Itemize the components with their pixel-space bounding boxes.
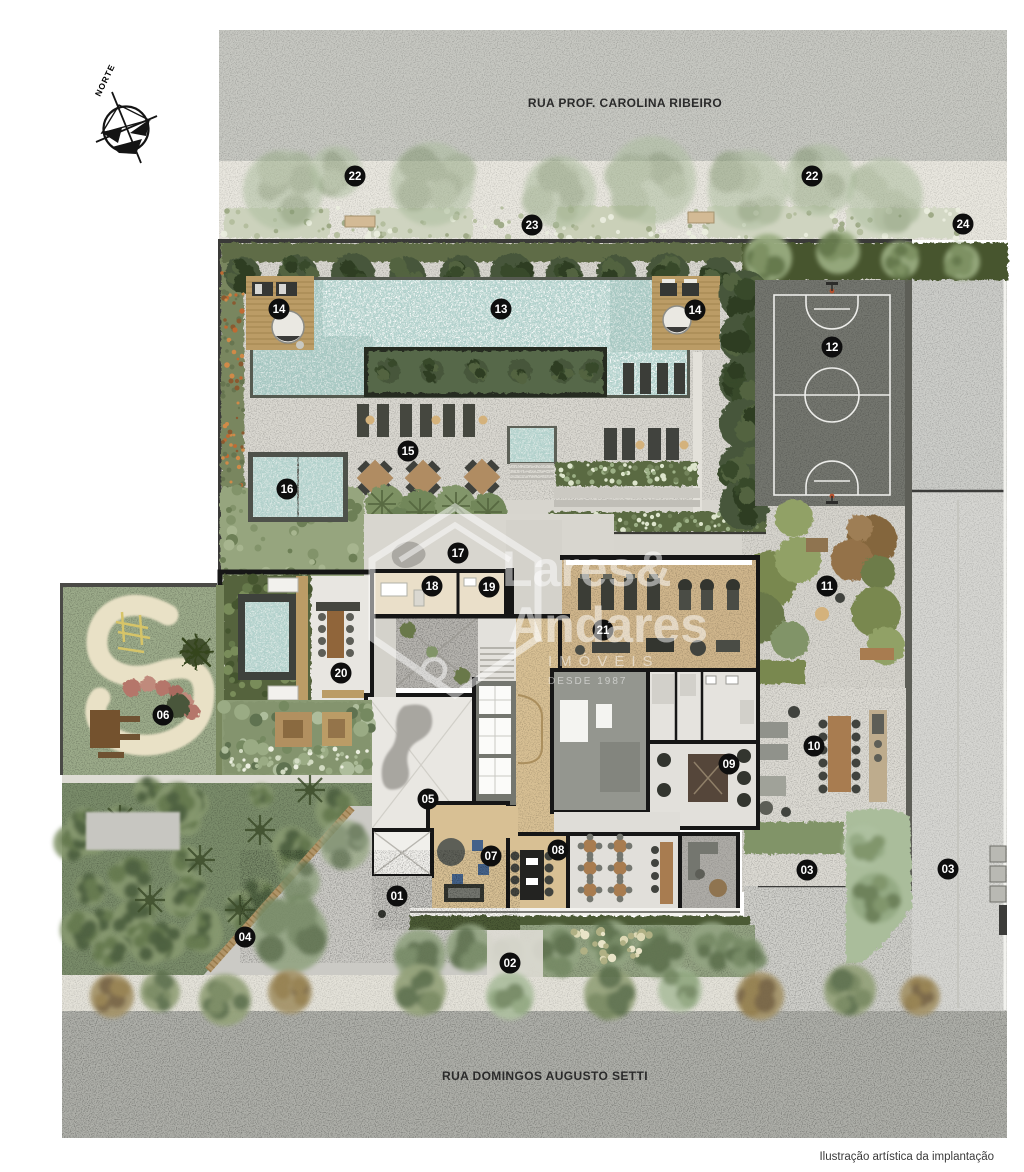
svg-text:02: 02 [504, 958, 517, 970]
svg-text:Andares: Andares [508, 597, 708, 653]
svg-text:14: 14 [273, 304, 286, 316]
svg-text:01: 01 [391, 891, 404, 903]
svg-text:IMÓVEIS: IMÓVEIS [548, 653, 660, 670]
svg-text:15: 15 [402, 446, 415, 458]
svg-text:03: 03 [801, 865, 814, 877]
svg-text:03: 03 [942, 864, 955, 876]
svg-text:17: 17 [452, 548, 465, 560]
svg-text:20: 20 [335, 668, 348, 680]
svg-text:Ilustração artística da implan: Ilustração artística da implantação [819, 1151, 994, 1163]
svg-text:DESDE 1987: DESDE 1987 [548, 676, 627, 687]
svg-text:24: 24 [957, 219, 970, 231]
svg-text:08: 08 [552, 845, 565, 857]
svg-text:16: 16 [281, 484, 294, 496]
svg-text:19: 19 [483, 582, 496, 594]
svg-text:09: 09 [723, 759, 736, 771]
svg-text:11: 11 [821, 581, 834, 593]
svg-text:RUA PROF. CAROLINA RIBEIRO: RUA PROF. CAROLINA RIBEIRO [528, 96, 722, 110]
svg-text:07: 07 [485, 851, 498, 863]
svg-text:12: 12 [826, 342, 839, 354]
svg-text:22: 22 [349, 171, 362, 183]
svg-text:10: 10 [808, 741, 821, 753]
svg-text:04: 04 [239, 932, 252, 944]
svg-text:14: 14 [689, 305, 702, 317]
svg-text:22: 22 [806, 171, 819, 183]
svg-text:23: 23 [526, 220, 539, 232]
svg-text:RUA DOMINGOS AUGUSTO SETTI: RUA DOMINGOS AUGUSTO SETTI [442, 1069, 648, 1083]
svg-text:13: 13 [495, 304, 508, 316]
svg-text:05: 05 [422, 794, 435, 806]
svg-text:Lares&: Lares& [502, 541, 672, 597]
svg-text:06: 06 [157, 710, 170, 722]
svg-text:18: 18 [426, 581, 439, 593]
